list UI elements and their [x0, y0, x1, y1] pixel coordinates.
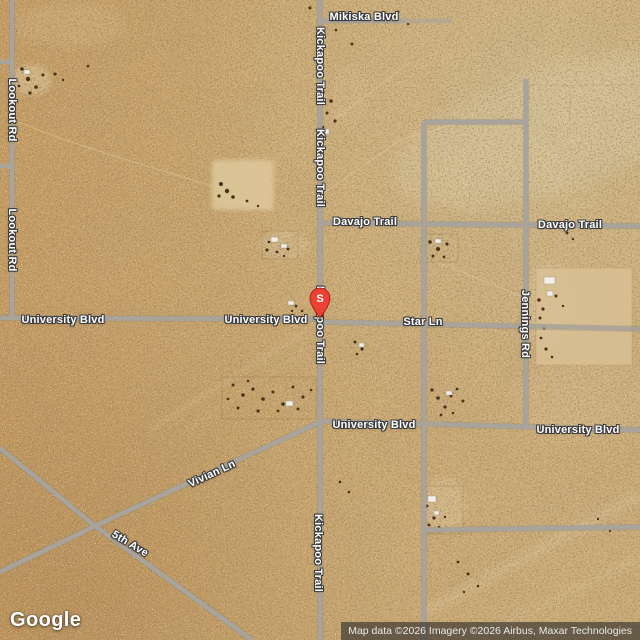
road-label-university-blvd-4: University Blvd [536, 424, 619, 436]
road-label-lookout-rd-2: Lookout Rd [6, 208, 18, 271]
road-label-kickapoo-trail-4: Kickapoo Trail [312, 514, 324, 592]
pin-letter: S [316, 293, 323, 305]
map-canvas[interactable]: Mikiska Blvd Kickapoo Trail Kickapoo Tra… [0, 0, 640, 640]
road-label-kickapoo-trail-2: Kickapoo Trail [314, 129, 326, 207]
road-label-university-blvd-3: University Blvd [332, 419, 415, 431]
road-star-ln-east [527, 326, 640, 329]
road-label-university-blvd-1: University Blvd [21, 314, 104, 326]
google-logo[interactable]: Google [10, 609, 81, 632]
search-pin-icon[interactable]: S [309, 287, 331, 319]
road-label-jennings-rd: Jennings Rd [519, 290, 531, 358]
road-label-kickapoo-trail-1: Kickapoo Trail [314, 27, 326, 105]
road-label-university-blvd-2: University Blvd [224, 314, 307, 326]
map-attribution: Map data ©2026 Imagery ©2026 Airbus, Max… [341, 622, 640, 640]
road-south-stub [424, 527, 640, 530]
road-label-mikiska-blvd: Mikiska Blvd [329, 11, 398, 23]
road-label-davajo-trail-1: Davajo Trail [333, 216, 397, 228]
road-label-star-ln: Star Ln [403, 316, 442, 328]
road-label-davajo-trail-2: Davajo Trail [538, 219, 602, 231]
road-label-lookout-rd-1: Lookout Rd [6, 78, 18, 141]
